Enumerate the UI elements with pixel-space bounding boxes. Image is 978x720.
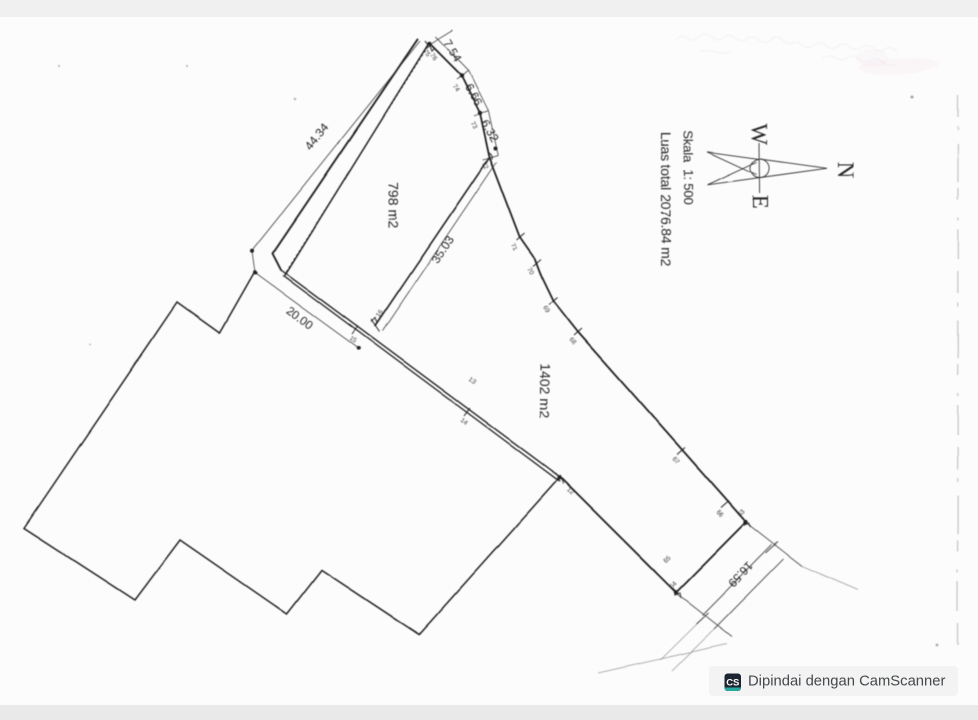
svg-text:16.59: 16.59 <box>725 559 756 591</box>
svg-text:14: 14 <box>459 417 469 427</box>
svg-text:69: 69 <box>542 305 552 315</box>
svg-text:7.54: 7.54 <box>441 37 465 65</box>
svg-text:E: E <box>748 195 773 209</box>
svg-text:66: 66 <box>714 509 724 519</box>
svg-text:74: 74 <box>450 83 460 93</box>
svg-text:63: 63 <box>736 508 746 518</box>
svg-text:N: N <box>833 162 858 179</box>
svg-text:798 m2: 798 m2 <box>386 182 402 229</box>
svg-text:15: 15 <box>348 335 358 345</box>
svg-text:W: W <box>747 123 772 145</box>
svg-text:Skala 1: 500: Skala 1: 500 <box>681 130 696 204</box>
svg-text:44.34: 44.34 <box>302 120 332 153</box>
svg-text:71: 71 <box>509 243 519 253</box>
svg-text:35.03: 35.03 <box>429 233 458 266</box>
svg-text:12: 12 <box>565 486 575 496</box>
svg-text:70: 70 <box>525 267 535 277</box>
svg-text:20.00: 20.00 <box>283 303 316 332</box>
svg-text:Dipindai dengan CamScanner: Dipindai dengan CamScanner <box>748 674 945 690</box>
svg-text:16: 16 <box>375 309 385 319</box>
svg-text:Luas total 2076.84 m2: Luas total 2076.84 m2 <box>658 132 674 267</box>
svg-text:6.32: 6.32 <box>478 117 502 145</box>
svg-text:73: 73 <box>469 121 479 131</box>
svg-text:13: 13 <box>467 376 477 386</box>
svg-text:1402 m2: 1402 m2 <box>537 363 553 418</box>
svg-text:6.66: 6.66 <box>461 81 485 109</box>
svg-text:68: 68 <box>567 337 577 347</box>
svg-text:65: 65 <box>662 554 672 564</box>
svg-text:CS: CS <box>726 678 739 689</box>
svg-text:67: 67 <box>671 456 681 466</box>
